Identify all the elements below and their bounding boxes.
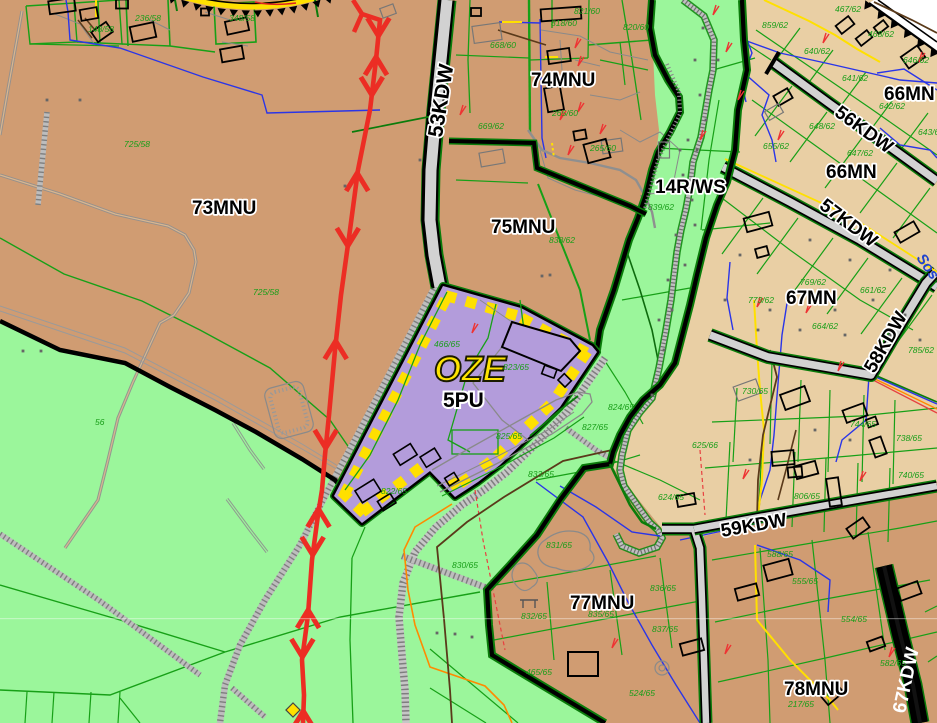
svg-text:642/62: 642/62 (879, 101, 905, 111)
svg-text:725/58: 725/58 (253, 287, 279, 297)
svg-text:467/62: 467/62 (835, 4, 861, 14)
svg-text:822/65: 822/65 (381, 486, 407, 496)
svg-text:838/62: 838/62 (549, 235, 575, 245)
svg-text:744/65: 744/65 (850, 419, 876, 429)
svg-text:859/62: 859/62 (762, 20, 788, 30)
svg-text:56: 56 (95, 417, 105, 427)
svg-text:265/60: 265/60 (551, 108, 578, 118)
svg-text:643/62: 643/62 (918, 127, 937, 137)
svg-text:625/66: 625/66 (692, 440, 718, 450)
svg-text:73MNU: 73MNU (192, 198, 256, 219)
svg-text:821/60: 821/60 (574, 6, 600, 16)
svg-text:524/65: 524/65 (629, 688, 655, 698)
svg-text:554/65: 554/65 (841, 614, 867, 624)
svg-text:588/65: 588/65 (767, 549, 793, 559)
svg-text:725/58: 725/58 (124, 139, 150, 149)
svg-text:468/62: 468/62 (868, 29, 894, 39)
svg-text:773/62: 773/62 (748, 295, 774, 305)
svg-text:641/62: 641/62 (842, 73, 868, 83)
svg-text:236/58: 236/58 (134, 13, 161, 23)
svg-text:824/65: 824/65 (608, 402, 634, 412)
svg-text:14R/WS: 14R/WS (655, 177, 726, 198)
svg-text:827/65: 827/65 (582, 422, 608, 432)
svg-text:78MNU: 78MNU (784, 679, 848, 700)
svg-text:836/65: 836/65 (650, 583, 676, 593)
svg-text:668/60: 668/60 (490, 40, 516, 50)
svg-text:825/65: 825/65 (496, 431, 522, 441)
svg-text:833/65: 833/65 (528, 469, 554, 479)
svg-text:818/60: 818/60 (551, 18, 577, 28)
svg-text:148/58: 148/58 (88, 24, 114, 34)
svg-text:730/65: 730/65 (742, 386, 768, 396)
svg-text:348/58: 348/58 (229, 13, 255, 23)
svg-text:820/60: 820/60 (623, 22, 649, 32)
svg-text:624/65: 624/65 (658, 492, 684, 502)
svg-text:582/65: 582/65 (880, 658, 906, 668)
svg-text:837/65: 837/65 (652, 624, 678, 634)
svg-text:647/62: 647/62 (847, 148, 873, 158)
svg-text:823/65: 823/65 (503, 362, 529, 372)
svg-text:217/65: 217/65 (787, 699, 814, 709)
svg-text:806/65: 806/65 (794, 491, 820, 501)
svg-text:265/60: 265/60 (589, 143, 616, 153)
svg-text:66MN: 66MN (826, 162, 877, 183)
svg-text:830/65: 830/65 (452, 560, 478, 570)
svg-text:835/65: 835/65 (588, 609, 614, 619)
svg-text:OZE: OZE (434, 350, 508, 389)
svg-text:839/62: 839/62 (648, 202, 674, 212)
svg-text:661/62: 661/62 (860, 285, 886, 295)
svg-text:832/65: 832/65 (521, 611, 547, 621)
svg-text:740/65: 740/65 (898, 470, 924, 480)
svg-text:664/62: 664/62 (812, 321, 838, 331)
svg-text:769/62: 769/62 (800, 277, 826, 287)
svg-text:785/62: 785/62 (908, 345, 934, 355)
svg-text:75MNU: 75MNU (491, 217, 555, 238)
svg-text:74MNU: 74MNU (531, 70, 595, 91)
svg-text:655/62: 655/62 (763, 141, 789, 151)
svg-text:648/62: 648/62 (809, 121, 835, 131)
svg-text:646/62: 646/62 (903, 55, 929, 65)
svg-text:831/65: 831/65 (546, 540, 572, 550)
svg-text:738/65: 738/65 (896, 433, 922, 443)
svg-text:640/62: 640/62 (804, 46, 830, 56)
svg-text:555/65: 555/65 (792, 576, 818, 586)
svg-text:5PU: 5PU (443, 389, 484, 412)
svg-text:466/65: 466/65 (434, 339, 460, 349)
svg-text:465/65: 465/65 (526, 667, 552, 677)
svg-text:67MN: 67MN (786, 288, 837, 309)
svg-text:669/62: 669/62 (478, 121, 504, 131)
